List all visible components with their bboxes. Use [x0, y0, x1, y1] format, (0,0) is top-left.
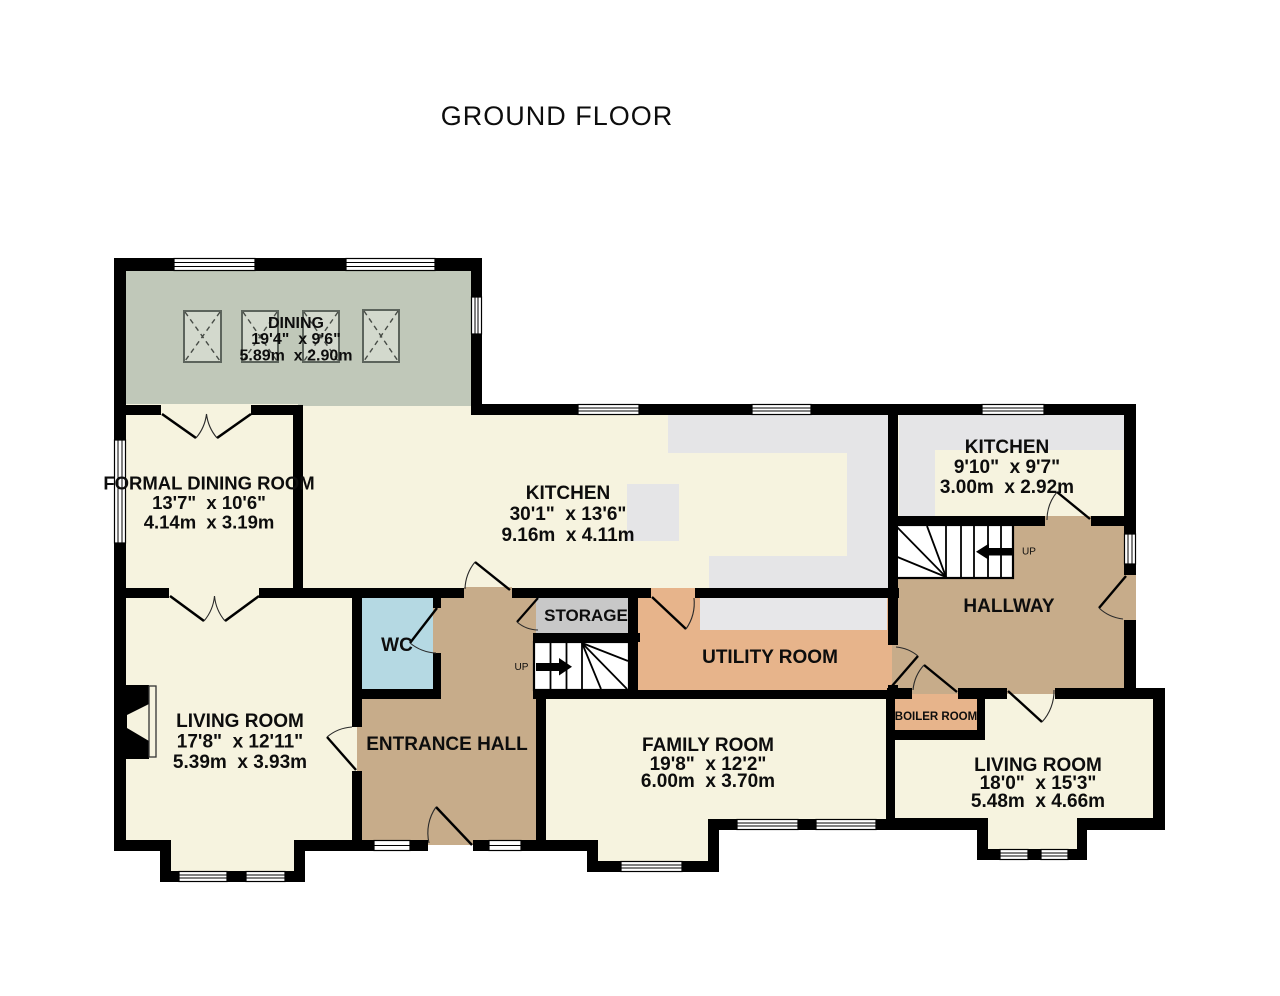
svg-text:6.00m x 3.70m: 6.00m x 3.70m — [641, 771, 775, 792]
svg-text:ENTRANCE HALL: ENTRANCE HALL — [366, 734, 528, 755]
svg-text:FAMILY ROOM: FAMILY ROOM — [642, 735, 774, 756]
svg-text:KITCHEN: KITCHEN — [526, 483, 610, 504]
svg-text:5.48m x 4.66m: 5.48m x 4.66m — [971, 791, 1105, 812]
svg-text:9'10" x 9'7": 9'10" x 9'7" — [954, 457, 1060, 478]
svg-text:STORAGE: STORAGE — [544, 606, 628, 625]
svg-text:4.14m x 3.19m: 4.14m x 3.19m — [144, 512, 275, 533]
svg-text:HALLWAY: HALLWAY — [963, 596, 1054, 617]
svg-text:17'8" x 12'11": 17'8" x 12'11" — [177, 732, 303, 753]
svg-text:WC: WC — [381, 635, 413, 656]
svg-text:13'7" x 10'6": 13'7" x 10'6" — [152, 492, 266, 513]
svg-text:KITCHEN: KITCHEN — [965, 437, 1049, 458]
svg-text:UTILITY ROOM: UTILITY ROOM — [702, 647, 838, 668]
svg-text:FORMAL DINING ROOM: FORMAL DINING ROOM — [103, 473, 314, 494]
svg-text:UP: UP — [1022, 547, 1036, 558]
svg-text:3.00m x 2.92m: 3.00m x 2.92m — [940, 477, 1074, 498]
svg-text:19'4" x 9'6": 19'4" x 9'6" — [251, 331, 341, 348]
svg-text:DINING: DINING — [268, 315, 324, 332]
svg-text:UP: UP — [515, 662, 529, 673]
svg-text:5.39m x 3.93m: 5.39m x 3.93m — [173, 752, 307, 773]
svg-text:LIVING ROOM: LIVING ROOM — [176, 711, 304, 732]
svg-text:30'1" x 13'6": 30'1" x 13'6" — [510, 504, 627, 525]
svg-text:BOILER ROOM: BOILER ROOM — [895, 711, 977, 723]
svg-text:9.16m x 4.11m: 9.16m x 4.11m — [501, 525, 634, 546]
svg-text:GROUND FLOOR: GROUND FLOOR — [441, 101, 674, 131]
svg-text:5.89m x 2.90m: 5.89m x 2.90m — [240, 348, 353, 365]
